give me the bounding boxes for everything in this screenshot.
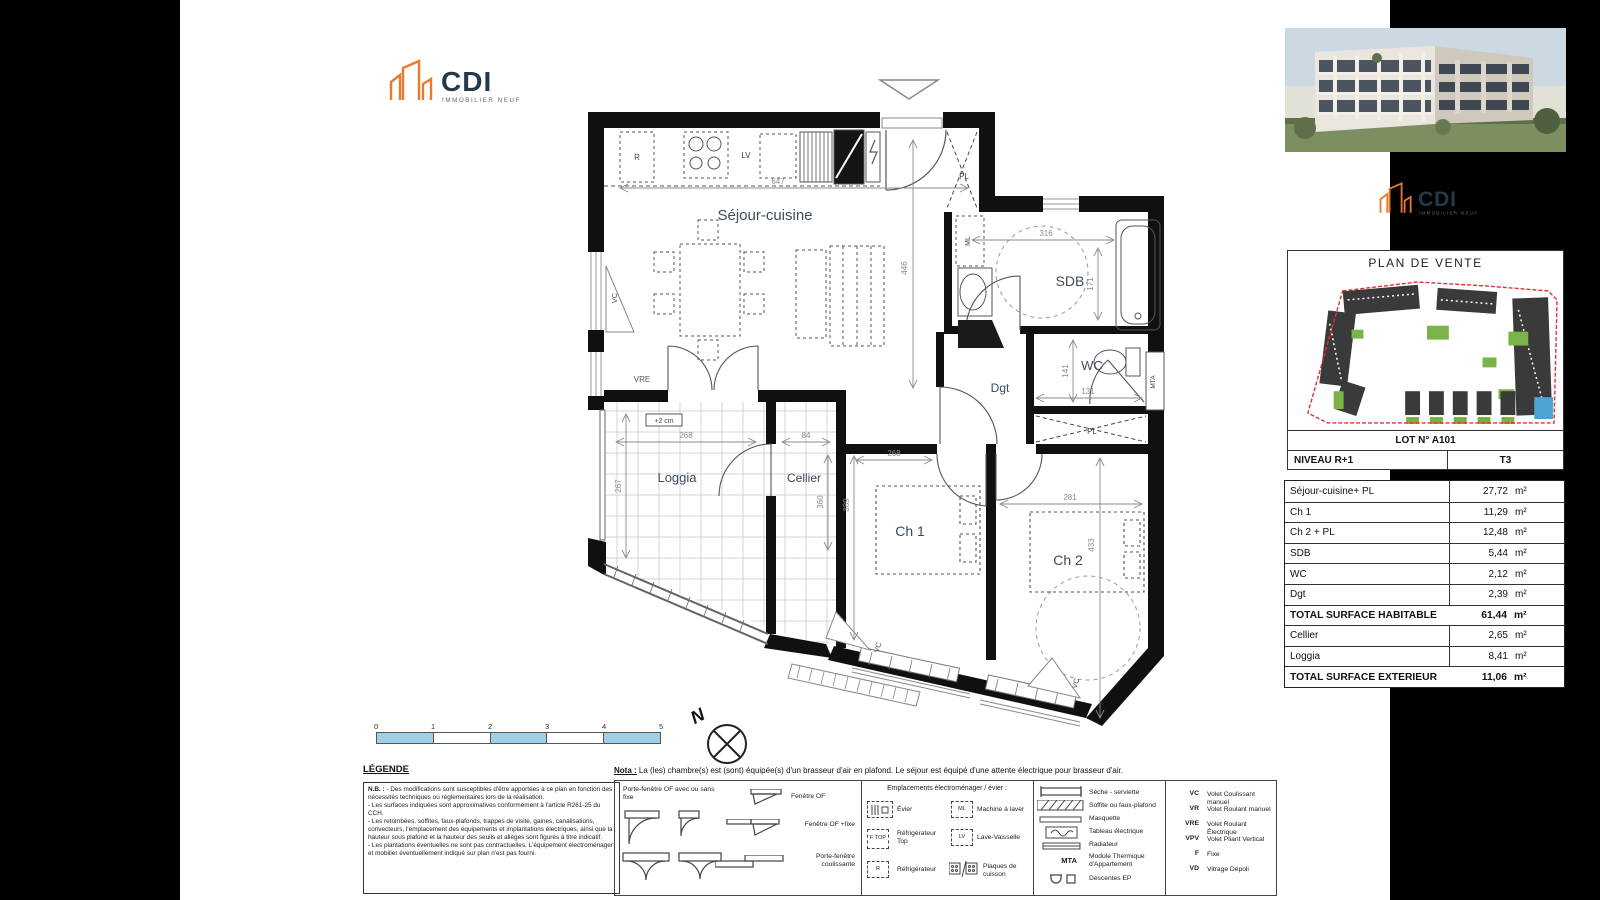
- scale-tick: 3: [545, 722, 549, 731]
- brand-tagline: IMMOBILIER NEUF: [1419, 210, 1478, 215]
- room-sdb: SDB: [1056, 273, 1085, 289]
- fridge-abbr: R: [876, 867, 880, 873]
- nb-label: N.B. :: [368, 786, 385, 793]
- lv-box: LV: [951, 829, 973, 846]
- building-render: [1285, 28, 1566, 152]
- dim-281: 281: [1063, 493, 1077, 502]
- window-of-icon: [733, 789, 785, 805]
- toilet-icon: [1126, 348, 1140, 376]
- brand-text: CDI: [441, 66, 492, 97]
- nb-box: N.B. : - Des modifications sont suscepti…: [363, 782, 620, 894]
- cdi-logo-panel: CDI IMMOBILIER NEUF: [1376, 180, 1504, 220]
- lot-number: LOT N° A101: [1287, 430, 1564, 451]
- entrance-arrow-icon: [880, 80, 938, 99]
- row-unit: m²: [1507, 672, 1544, 683]
- lv-abbr: LV: [959, 835, 965, 841]
- brand-tagline: IMMOBILIER NEUF: [442, 97, 521, 104]
- window-of-fixed-label: Fenêtre OF +fixe: [791, 821, 855, 829]
- fridge-top-abbr: F TOP: [870, 836, 886, 842]
- cdi-logo: CDI IMMOBILIER NEUF: [385, 58, 555, 108]
- nb-line: - Des modifications sont susceptibles d'…: [368, 786, 612, 801]
- row-unit: m²: [1508, 630, 1545, 641]
- brand-text: CDI: [1418, 188, 1457, 211]
- f-def: Fixe: [1207, 851, 1220, 859]
- legend-title: LÉGENDE: [363, 764, 409, 775]
- vr-abbr: VR: [1171, 805, 1199, 812]
- table-row: Cellier 2,65 m²: [1285, 625, 1564, 646]
- vre-def: Volet Roulant Électrique: [1207, 821, 1276, 836]
- vc-def: Volet Coulissant manuel: [1207, 791, 1276, 806]
- vc-left-label: VC: [610, 292, 619, 303]
- table-row: WC 2,12 m²: [1285, 563, 1564, 584]
- scale-tick: 1: [431, 722, 435, 731]
- electric-panel-icon: [866, 132, 880, 182]
- electric-board-icon: [1045, 826, 1079, 840]
- scale-bar: 0 1 2 3 4 5: [376, 722, 676, 748]
- ml-abbr: ML: [958, 807, 966, 813]
- hob-label: Plaques de cuisson: [983, 863, 1029, 878]
- room-ch2: Ch 2: [1053, 552, 1083, 568]
- bed1-icon: [876, 486, 980, 574]
- appliances-header: Emplacements électroménager / évier :: [865, 785, 1029, 793]
- row-unit: m²: [1508, 569, 1545, 580]
- dim-267: 267: [614, 479, 623, 493]
- table-row: Ch 1 11,29 m²: [1285, 502, 1564, 523]
- level-row: NIVEAU R+1 T3: [1287, 450, 1564, 470]
- scale-tick: 0: [374, 722, 378, 731]
- room-wc: WC: [1081, 358, 1103, 373]
- ml-label2: Machine à laver: [977, 806, 1024, 814]
- vd-abbr: VD: [1171, 865, 1199, 872]
- vc-ch2-label: VC: [1070, 677, 1082, 690]
- type-label: T3: [1447, 451, 1563, 469]
- table-row-total-exterieur: TOTAL SURFACE EXTERIEUR 11,06 m²: [1285, 666, 1564, 687]
- mta-label: MTA: [1150, 375, 1157, 389]
- table-row: Dgt 2,39 m²: [1285, 584, 1564, 605]
- level-label: NIVEAU R+1: [1288, 451, 1447, 469]
- table-row: Loggia 8,41 m²: [1285, 646, 1564, 667]
- radiator-label: Radiateur: [1089, 841, 1118, 849]
- surface-table: Séjour-cuisine+ PL 27,72 m² Ch 1 11,29 m…: [1284, 480, 1565, 688]
- row-value: 2,65: [1450, 630, 1508, 641]
- towel-radiator-label: Sèche - serviette: [1089, 789, 1139, 797]
- fridge-top-label: Réfrigérateur Top: [897, 830, 947, 845]
- row-value: 11,29: [1450, 507, 1508, 518]
- pl-entrance-label: PL: [959, 172, 969, 181]
- opening-label: Porte-fenêtre OF avec ou sans fixe: [623, 786, 718, 801]
- row-unit: m²: [1508, 548, 1545, 559]
- fridge-top-box: F TOP: [867, 829, 889, 849]
- vre-abbr: VRE: [1171, 820, 1199, 827]
- masquette-icon: [1039, 816, 1083, 824]
- vre-label: VRE: [634, 375, 650, 384]
- dim-141: 141: [1061, 364, 1070, 378]
- room-sejour: Séjour-cuisine: [717, 207, 812, 224]
- row-unit: m²: [1508, 589, 1545, 600]
- row-label: Séjour-cuisine+ PL: [1285, 486, 1449, 497]
- dim-389: 389: [842, 498, 851, 512]
- row-label: TOTAL SURFACE HABITABLE: [1285, 610, 1449, 621]
- vpv-abbr: VPV: [1171, 835, 1199, 842]
- dimension-lines: [616, 140, 1142, 718]
- sink-legend-icon: [867, 801, 893, 818]
- row-unit: m²: [1508, 507, 1545, 518]
- radiator-icon: [1042, 842, 1082, 851]
- towel-radiator-icon: [1039, 786, 1085, 798]
- scale-tick: 2: [488, 722, 492, 731]
- pool: [1534, 397, 1553, 419]
- vr-def: Volet Roulant manuel: [1207, 806, 1271, 814]
- table-row: SDB 5,44 m²: [1285, 543, 1564, 564]
- fridge-label2: Réfrigérateur: [897, 866, 936, 874]
- row-label: Cellier: [1285, 630, 1449, 641]
- nb-line: - Les plantations éventuelles ne sont pa…: [368, 842, 615, 858]
- ml-box: ML: [951, 801, 973, 818]
- floor-plan: 647 446 316 171 141 131 268 389 281 433 …: [575, 60, 1190, 750]
- fridge-label: R: [634, 153, 640, 162]
- plus2cm-label: +2 cm: [654, 418, 673, 425]
- north-label: N: [687, 704, 709, 728]
- row-value: 12,48: [1450, 527, 1508, 538]
- row-unit: m²: [1508, 527, 1545, 538]
- row-label: WC: [1285, 569, 1449, 580]
- row-value: 8,41: [1450, 651, 1508, 662]
- table-row: Séjour-cuisine+ PL 27,72 m²: [1285, 481, 1564, 502]
- hob-legend-icon: [949, 861, 979, 879]
- room-cellier: Cellier: [787, 471, 821, 485]
- dim-446: 446: [900, 261, 909, 275]
- pl-wc-label: PL: [1087, 427, 1097, 436]
- row-unit: m²: [1508, 486, 1545, 497]
- sink-label: Évier: [897, 806, 912, 814]
- nb-line: - Les retombées, soffites, faux-plafonds…: [368, 818, 615, 842]
- row-value: 61,44: [1449, 610, 1507, 621]
- row-label: TOTAL SURFACE EXTERIEUR: [1285, 672, 1449, 683]
- door-icons: [621, 809, 739, 893]
- table-icon: [680, 244, 740, 336]
- dim-316: 316: [1039, 229, 1053, 238]
- scale-tick: 5: [659, 722, 663, 731]
- page: CDI IMMOBILIER NEUF: [0, 0, 1600, 900]
- nota-text: La (les) chambre(s) est (sont) équipée(s…: [639, 766, 1123, 775]
- plan-de-vente-title: PLAN DE VENTE: [1287, 250, 1564, 275]
- row-value: 5,44: [1450, 548, 1508, 559]
- vc-abbr: VC: [1171, 790, 1199, 797]
- window-of-label: Fenêtre OF: [791, 793, 855, 801]
- row-unit: m²: [1507, 610, 1544, 621]
- sejour-furniture: [654, 220, 884, 360]
- fridge-box: R: [867, 861, 889, 878]
- lv-label2: Lave-Vaisselle: [977, 834, 1020, 842]
- row-value: 2,12: [1450, 569, 1508, 580]
- row-value: 11,06: [1449, 672, 1507, 683]
- mta-abbr: MTA: [1047, 856, 1077, 865]
- dim-268-loggia: 268: [679, 431, 693, 440]
- cdi-buildings-icon: [1381, 183, 1411, 212]
- dim-433: 433: [1087, 538, 1096, 552]
- ml-label: ML: [965, 236, 972, 246]
- row-unit: m²: [1508, 651, 1545, 662]
- mta-legend-label: Module Thermique d'Appartement: [1089, 853, 1161, 868]
- descentes-ep-label: Descentes EP: [1089, 875, 1131, 883]
- masquette-label: Masquette: [1089, 815, 1120, 823]
- beds: [876, 486, 1144, 592]
- sliding-door-label: Porte-fenêtre coulissante: [791, 853, 855, 868]
- dim-647: 647: [771, 177, 785, 186]
- nota-label: Nota :: [614, 766, 637, 775]
- descentes-ep-icon: [1049, 873, 1079, 885]
- vd-def: Vitrage Dépoli: [1207, 866, 1249, 874]
- north-compass: N: [680, 698, 760, 774]
- window-of-fixed-icon: [725, 819, 785, 837]
- soffit-icon: [1037, 800, 1085, 812]
- room-loggia: Loggia: [657, 470, 697, 485]
- table-row: Ch 2 + PL 12,48 m²: [1285, 522, 1564, 543]
- nb-line: - Les surfaces indiquées sont approximat…: [368, 802, 615, 818]
- row-label: Ch 2 + PL: [1285, 527, 1449, 538]
- room-ch1: Ch 1: [895, 523, 925, 539]
- dim-131: 131: [1081, 387, 1095, 396]
- dim-360: 360: [816, 495, 825, 509]
- row-label: SDB: [1285, 548, 1449, 559]
- electric-board-label: Tableau électrique: [1089, 828, 1143, 836]
- row-label: Loggia: [1285, 651, 1449, 662]
- vpv-def: Volet Pliant Vertical: [1207, 836, 1264, 844]
- scale-tick: 4: [602, 722, 606, 731]
- room-dgt: Dgt: [991, 381, 1010, 395]
- dishwasher-icon: [760, 134, 796, 178]
- dim-84: 84: [802, 431, 811, 440]
- row-label: Ch 1: [1285, 507, 1449, 518]
- soffit-label: Soffite ou faux-plafond: [1089, 802, 1156, 810]
- nota-line: Nota : La (les) chambre(s) est (sont) éq…: [614, 766, 1274, 775]
- cdi-buildings-icon: [391, 61, 431, 100]
- f-abbr: F: [1171, 850, 1199, 857]
- dim-171: 171: [1086, 277, 1095, 291]
- plan-sheet: CDI IMMOBILIER NEUF: [180, 0, 1390, 900]
- table-row-total-habitable: TOTAL SURFACE HABITABLE 61,44 m²: [1285, 605, 1564, 626]
- sliding-door-icon: [715, 855, 785, 869]
- row-value: 27,72: [1450, 486, 1508, 497]
- lv-label: LV: [741, 151, 751, 160]
- dim-268-ch1: 268: [887, 449, 901, 458]
- row-label: Dgt: [1285, 589, 1449, 600]
- site-plan: [1287, 274, 1564, 431]
- row-value: 2,39: [1450, 589, 1508, 600]
- legend-table: Porte-fenêtre OF avec ou sans fixe Fenêt…: [614, 780, 1277, 896]
